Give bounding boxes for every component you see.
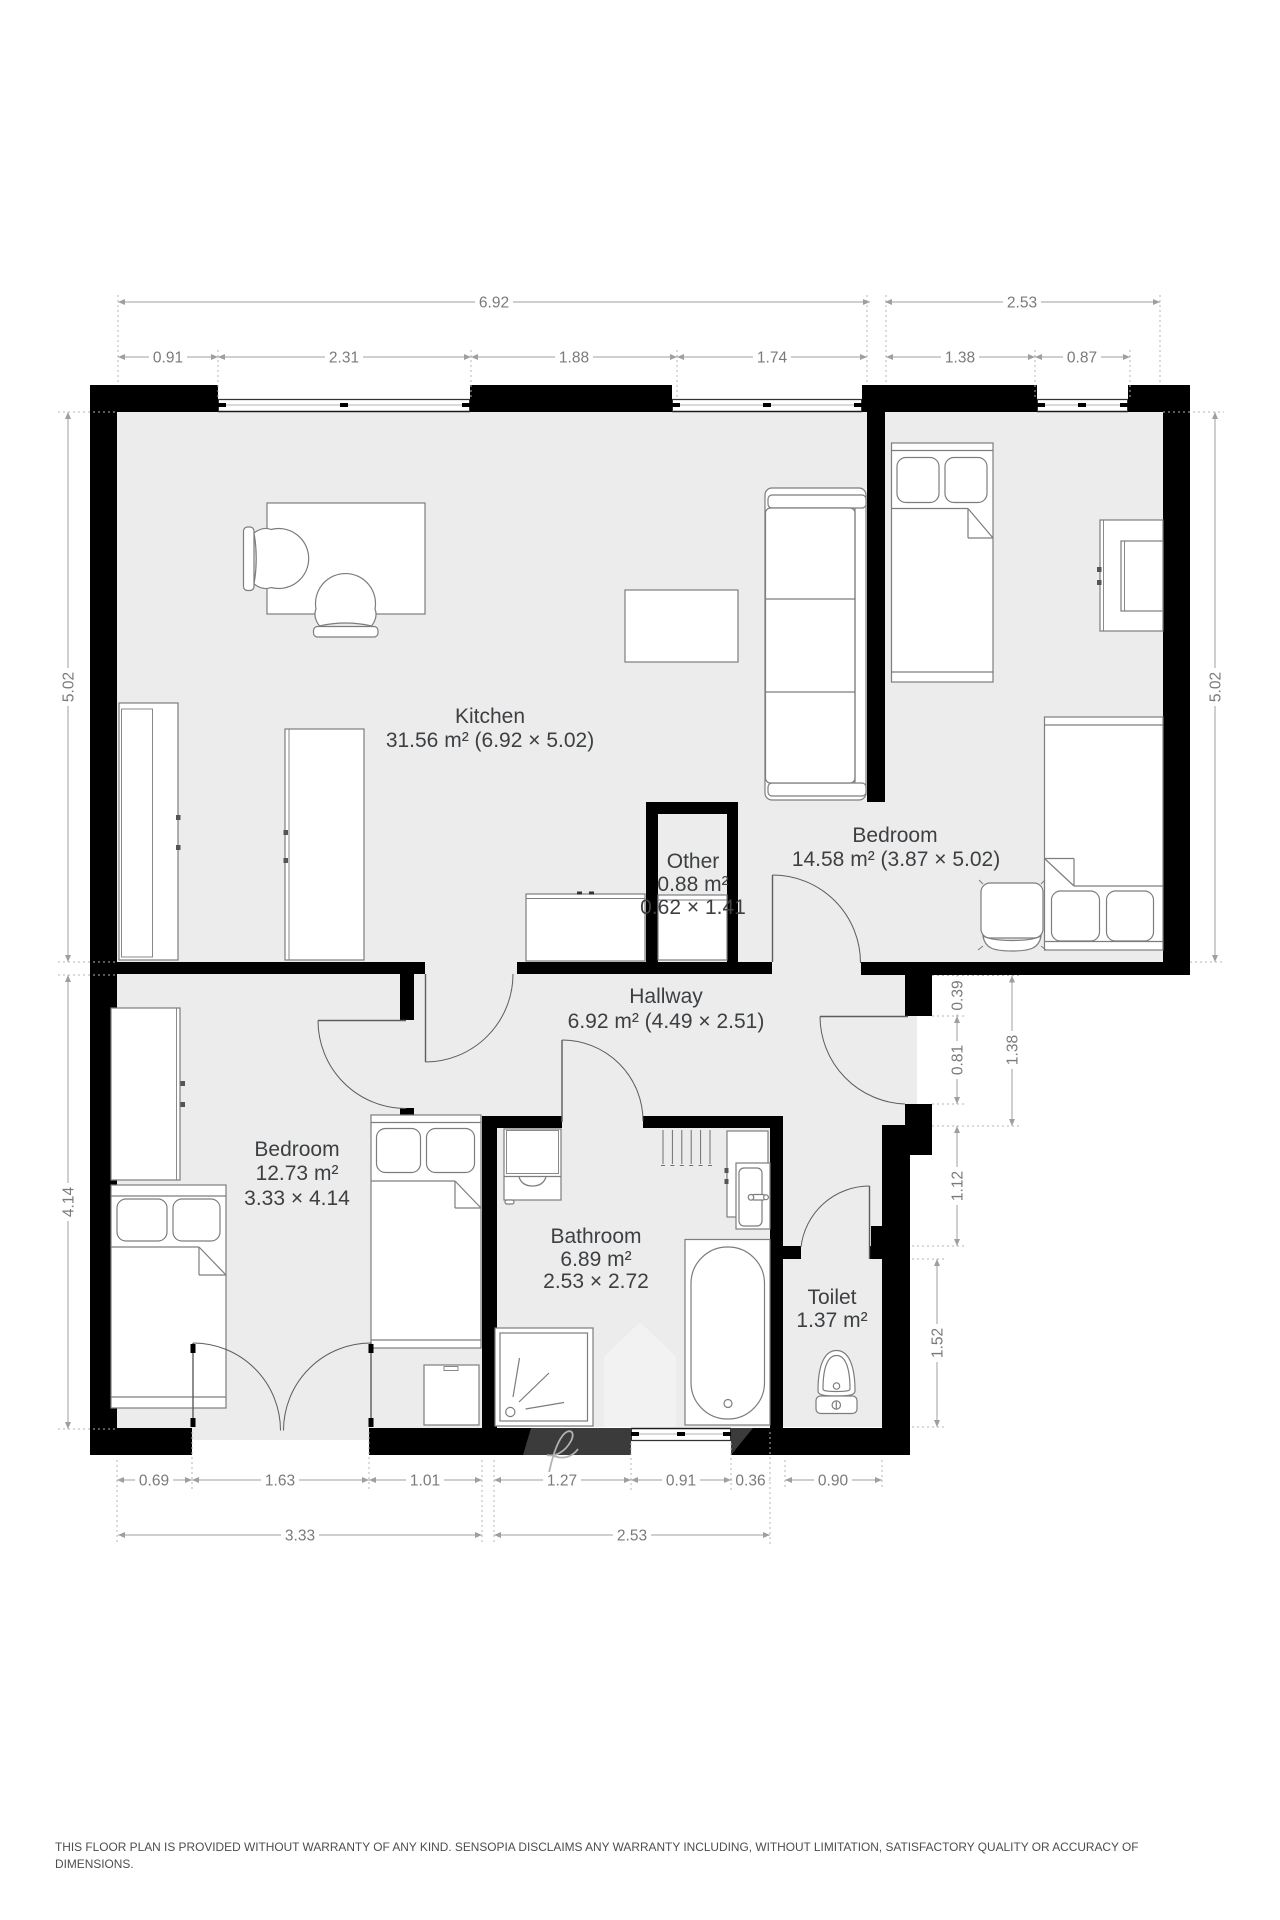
svg-text:1.88: 1.88 [559,350,589,367]
svg-text:0.88 m²: 0.88 m² [657,873,728,896]
svg-text:2.53: 2.53 [617,1528,647,1545]
svg-text:1.52: 1.52 [930,1328,947,1358]
svg-text:1.38: 1.38 [1005,1035,1022,1065]
svg-text:1.38: 1.38 [945,350,975,367]
svg-text:1.27: 1.27 [547,1473,577,1490]
svg-text:THIS FLOOR PLAN IS PROVIDED WI: THIS FLOOR PLAN IS PROVIDED WITHOUT WARR… [55,1840,1139,1854]
svg-text:2.53: 2.53 [1007,295,1037,312]
svg-text:2.53 × 2.72: 2.53 × 2.72 [543,1270,649,1293]
svg-text:1.37 m²: 1.37 m² [796,1309,867,1332]
svg-text:4.14: 4.14 [61,1187,78,1218]
svg-text:Kitchen: Kitchen [455,705,525,728]
svg-text:0.91: 0.91 [153,350,183,367]
svg-text:0.36: 0.36 [735,1473,765,1490]
svg-text:6.89 m²: 6.89 m² [560,1248,631,1271]
svg-text:1.63: 1.63 [265,1473,295,1490]
svg-text:3.33: 3.33 [285,1528,315,1545]
svg-text:Bedroom: Bedroom [852,824,937,847]
svg-text:0.91: 0.91 [666,1473,696,1490]
svg-text:0.69: 0.69 [139,1473,169,1490]
svg-text:5.02: 5.02 [61,672,78,702]
svg-text:0.62 × 1.41: 0.62 × 1.41 [640,896,746,919]
svg-text:31.56 m² (6.92 × 5.02): 31.56 m² (6.92 × 5.02) [386,729,594,752]
svg-text:1.74: 1.74 [757,350,788,367]
svg-text:3.33 × 4.14: 3.33 × 4.14 [244,1187,350,1210]
svg-text:14.58 m² (3.87 × 5.02): 14.58 m² (3.87 × 5.02) [792,848,1000,871]
svg-text:1.12: 1.12 [950,1171,967,1201]
svg-text:0.90: 0.90 [818,1473,849,1490]
svg-text:2.31: 2.31 [329,350,359,367]
svg-text:12.73 m²: 12.73 m² [256,1162,339,1185]
svg-text:Other: Other [667,850,720,873]
svg-text:Bathroom: Bathroom [550,1225,641,1248]
svg-text:5.02: 5.02 [1208,672,1225,702]
svg-text:0.87: 0.87 [1067,350,1097,367]
svg-text:DIMENSIONS.: DIMENSIONS. [55,1857,134,1871]
svg-text:0.81: 0.81 [950,1045,967,1075]
svg-text:0.39: 0.39 [950,980,967,1010]
svg-text:6.92 m² (4.49 × 2.51): 6.92 m² (4.49 × 2.51) [568,1010,765,1033]
svg-text:Hallway: Hallway [629,985,703,1008]
svg-text:Toilet: Toilet [807,1286,856,1309]
svg-text:1.01: 1.01 [410,1473,440,1490]
svg-text:6.92: 6.92 [479,295,509,312]
svg-text:Bedroom: Bedroom [254,1138,339,1161]
